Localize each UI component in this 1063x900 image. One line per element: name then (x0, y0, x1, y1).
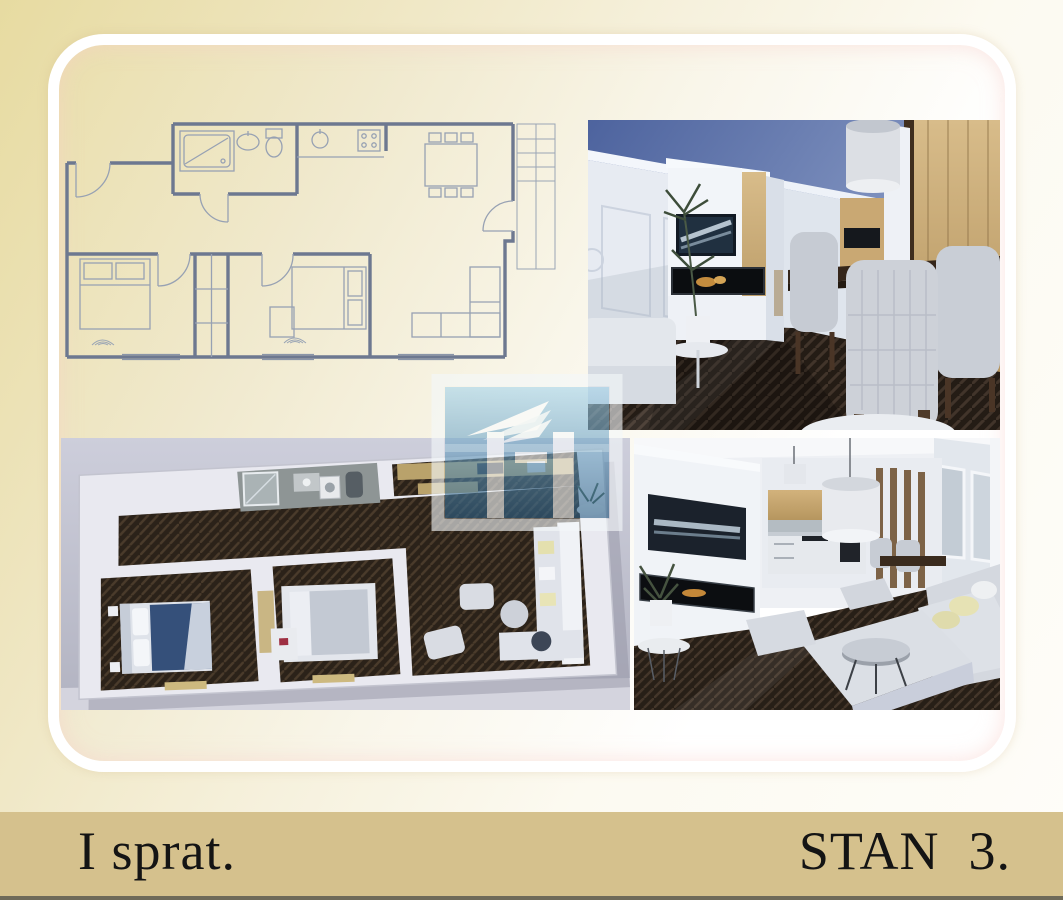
logo-shapes (438, 380, 616, 525)
window-slats (165, 681, 207, 690)
logo-pillar-left (487, 432, 504, 518)
architect-logo-watermark (431, 374, 623, 531)
logo-pillar-right (553, 432, 574, 518)
footer-bar: I sprat. STAN 3. (0, 812, 1063, 900)
logo-crossbar (515, 452, 547, 463)
bed-double-grey (269, 583, 378, 663)
floor-label: I sprat. (78, 824, 236, 878)
plan-bathroom (180, 129, 282, 171)
fireplace-tv-unit (666, 158, 784, 342)
plan-plants (92, 338, 306, 345)
brochure-page: I sprat. STAN 3. (0, 0, 1063, 900)
living-kitchen-render (634, 438, 1000, 710)
unit-label: STAN 3. (799, 824, 1011, 878)
lamp-shade (846, 120, 900, 193)
floor-plan-drawing (62, 117, 558, 369)
window-slats-2 (312, 674, 354, 683)
plan-stairwell (517, 124, 555, 269)
plan-walls (67, 124, 513, 357)
living-dining-render (588, 120, 1000, 430)
bed-double-blue (108, 601, 212, 675)
dining-chair (846, 260, 938, 430)
